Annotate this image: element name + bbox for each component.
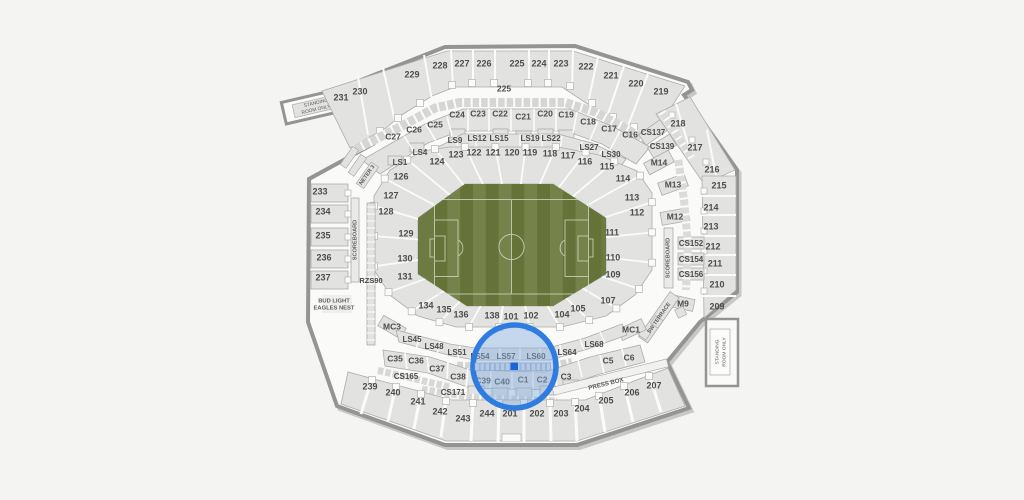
svg-text:C26: C26 [406, 124, 422, 134]
svg-text:209: 209 [709, 301, 724, 311]
svg-text:202: 202 [529, 408, 544, 418]
svg-text:224: 224 [531, 58, 546, 68]
svg-text:LS51: LS51 [447, 348, 467, 357]
svg-text:118: 118 [543, 148, 558, 158]
svg-text:LS9: LS9 [448, 136, 463, 145]
svg-text:216: 216 [704, 164, 719, 174]
svg-text:MC3: MC3 [383, 321, 401, 331]
svg-text:242: 242 [432, 406, 447, 416]
svg-text:C5: C5 [603, 355, 614, 365]
svg-text:121: 121 [485, 147, 500, 157]
svg-text:134: 134 [418, 300, 433, 310]
svg-text:205: 205 [598, 395, 613, 405]
svg-text:112: 112 [630, 207, 645, 217]
svg-text:C24: C24 [449, 109, 465, 119]
svg-text:LS45: LS45 [402, 335, 422, 344]
svg-text:LS1: LS1 [393, 158, 408, 167]
svg-text:C37: C37 [429, 363, 445, 373]
svg-text:ROOM ONLY: ROOM ONLY [721, 337, 727, 367]
svg-text:227: 227 [454, 58, 469, 68]
svg-text:MC1: MC1 [622, 324, 640, 334]
svg-text:124: 124 [429, 156, 444, 166]
svg-text:222: 222 [578, 61, 593, 71]
svg-text:237: 237 [315, 272, 330, 282]
svg-text:C22: C22 [492, 108, 508, 118]
svg-text:M14: M14 [651, 157, 668, 167]
svg-text:230: 230 [352, 86, 367, 96]
svg-text:225: 225 [509, 58, 524, 68]
svg-text:120: 120 [504, 147, 519, 157]
svg-text:CS165: CS165 [394, 372, 419, 381]
svg-text:107: 107 [600, 295, 615, 305]
svg-text:SCOREBOARD: SCOREBOARD [665, 238, 671, 278]
svg-text:CS137: CS137 [641, 128, 666, 137]
svg-text:104: 104 [554, 309, 569, 319]
svg-text:LS4: LS4 [413, 148, 428, 157]
svg-text:229: 229 [404, 69, 419, 79]
svg-text:101: 101 [503, 311, 518, 321]
svg-text:113: 113 [625, 192, 640, 202]
svg-text:235: 235 [315, 230, 330, 240]
svg-text:228: 228 [432, 60, 447, 70]
svg-text:CS139: CS139 [650, 142, 675, 151]
svg-text:127: 127 [383, 190, 398, 200]
svg-text:109: 109 [605, 269, 620, 279]
svg-text:LS64: LS64 [557, 348, 577, 357]
svg-text:115: 115 [600, 161, 615, 171]
svg-text:116: 116 [578, 156, 593, 166]
svg-text:130: 130 [397, 253, 412, 263]
svg-text:214: 214 [703, 202, 718, 212]
svg-text:114: 114 [616, 173, 631, 183]
svg-text:240: 240 [385, 387, 400, 397]
svg-text:EAGLES NEST: EAGLES NEST [314, 306, 355, 312]
svg-text:C35: C35 [387, 353, 403, 363]
svg-text:221: 221 [603, 70, 618, 80]
svg-text:C6: C6 [624, 352, 635, 362]
svg-text:220: 220 [628, 78, 643, 88]
svg-text:119: 119 [523, 147, 538, 157]
svg-text:SCOREBOARD: SCOREBOARD [352, 220, 358, 260]
svg-text:LS12: LS12 [467, 134, 487, 143]
svg-text:M9: M9 [677, 298, 689, 308]
svg-text:CS152: CS152 [679, 239, 704, 248]
svg-text:244: 244 [479, 408, 494, 418]
svg-text:243: 243 [455, 413, 470, 423]
svg-text:241: 241 [410, 396, 425, 406]
svg-text:M13: M13 [665, 179, 682, 189]
svg-text:231: 231 [333, 92, 348, 102]
svg-text:211: 211 [708, 258, 723, 268]
svg-text:226: 226 [476, 58, 491, 68]
svg-text:126: 126 [393, 171, 408, 181]
svg-text:239: 239 [362, 381, 377, 391]
svg-text:C18: C18 [580, 116, 596, 126]
svg-text:117: 117 [561, 150, 576, 160]
svg-text:C21: C21 [515, 111, 531, 121]
svg-text:110: 110 [606, 252, 621, 262]
svg-text:C36: C36 [408, 355, 424, 365]
svg-text:C3: C3 [561, 371, 572, 381]
svg-text:CS154: CS154 [679, 255, 704, 264]
svg-text:102: 102 [523, 310, 538, 320]
svg-text:136: 136 [453, 309, 468, 319]
svg-text:225: 225 [497, 83, 511, 93]
svg-text:C25: C25 [427, 119, 443, 129]
svg-text:129: 129 [398, 228, 413, 238]
svg-text:203: 203 [553, 408, 568, 418]
svg-text:204: 204 [574, 403, 589, 413]
svg-text:LS48: LS48 [424, 342, 444, 351]
svg-text:C19: C19 [558, 109, 574, 119]
svg-text:STANDING: STANDING [714, 339, 720, 364]
svg-text:123: 123 [448, 149, 463, 159]
svg-text:C20: C20 [537, 108, 553, 118]
svg-text:218: 218 [670, 118, 685, 128]
svg-text:LS30: LS30 [601, 150, 621, 159]
svg-text:CS171: CS171 [441, 388, 466, 397]
svg-text:LS22: LS22 [541, 134, 561, 143]
svg-text:LS68: LS68 [584, 340, 604, 349]
svg-text:C38: C38 [450, 371, 466, 381]
svg-text:128: 128 [378, 206, 393, 216]
svg-text:105: 105 [570, 303, 585, 313]
svg-text:234: 234 [315, 206, 330, 216]
svg-text:M12: M12 [667, 211, 684, 221]
svg-text:213: 213 [703, 221, 718, 231]
svg-text:236: 236 [316, 252, 331, 262]
svg-text:CS156: CS156 [679, 270, 704, 279]
svg-text:223: 223 [553, 58, 568, 68]
svg-text:233: 233 [312, 186, 327, 196]
svg-text:C23: C23 [470, 108, 486, 118]
svg-text:210: 210 [709, 279, 724, 289]
svg-text:LS15: LS15 [489, 134, 509, 143]
svg-text:111: 111 [605, 227, 619, 237]
svg-text:BUD LIGHT: BUD LIGHT [318, 299, 350, 305]
svg-text:215: 215 [711, 180, 726, 190]
svg-text:135: 135 [436, 304, 451, 314]
svg-text:206: 206 [624, 387, 639, 397]
svg-text:LS19: LS19 [520, 134, 540, 143]
svg-text:207: 207 [646, 380, 661, 390]
svg-text:217: 217 [687, 142, 702, 152]
svg-text:C17: C17 [601, 123, 617, 133]
svg-text:C16: C16 [622, 129, 638, 139]
svg-text:219: 219 [653, 86, 668, 96]
svg-text:122: 122 [466, 147, 481, 157]
svg-text:138: 138 [484, 310, 499, 320]
svg-text:RZS90: RZS90 [359, 276, 382, 285]
svg-text:131: 131 [397, 271, 412, 281]
svg-text:212: 212 [705, 241, 720, 251]
svg-text:LS27: LS27 [579, 143, 599, 152]
svg-text:C27: C27 [385, 131, 401, 141]
